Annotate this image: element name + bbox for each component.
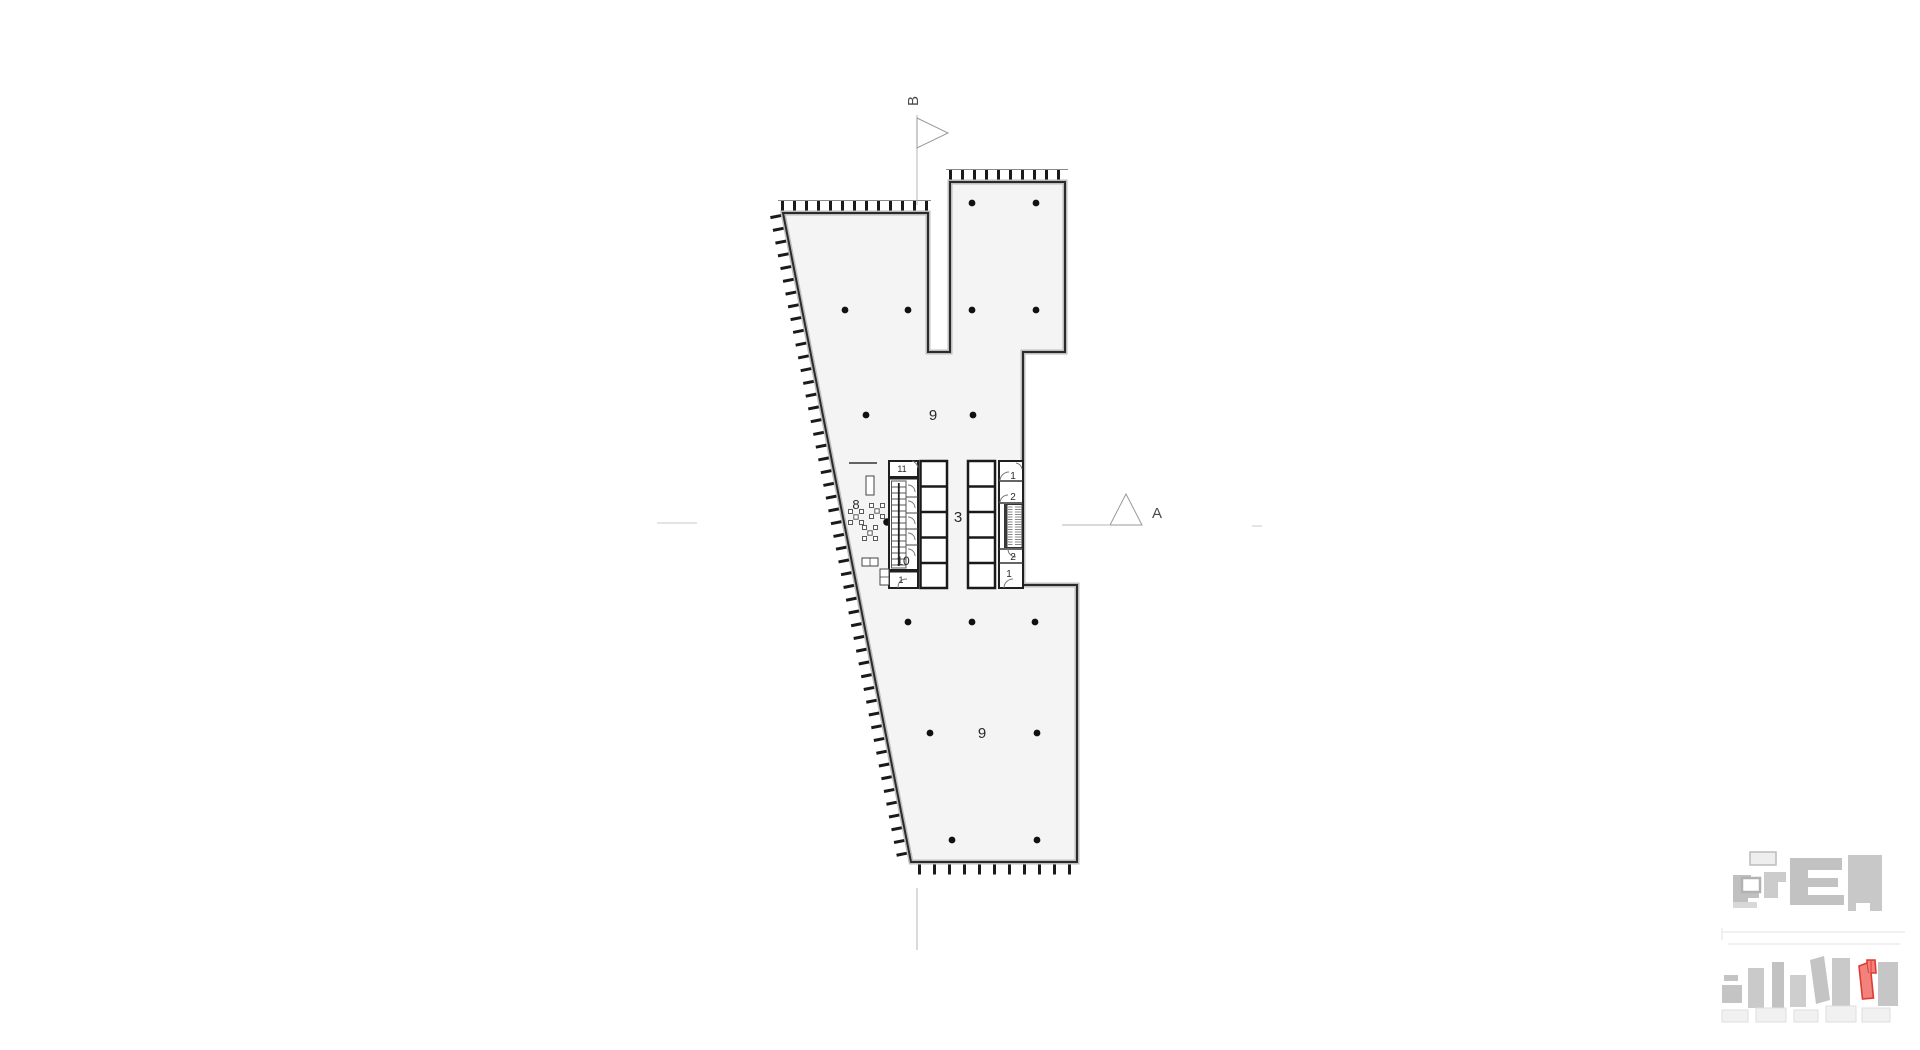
locator-map [1722,852,1905,1022]
section-a-letter: A [1152,505,1162,522]
column-dot [842,307,849,314]
column-dot [1032,619,1039,626]
locator-bottom-row [1722,956,1898,1022]
column-dot [927,730,934,737]
elevator-bank-left [921,461,948,588]
column-dot [1034,730,1041,737]
locator-top-row [1733,852,1882,911]
column-dot [1034,837,1041,844]
table-rect [866,476,874,495]
room-label-8: 8 [852,497,859,512]
elevator-bank-right [968,461,995,588]
column-dot [969,200,976,207]
locator-faint-band [1722,928,1905,944]
section-a-triangle-icon [1110,494,1142,525]
column-dot [1033,307,1040,314]
core-left-wall [889,461,918,588]
wall-bar [889,569,918,573]
room-label-3: 3 [954,509,962,526]
column-dot [969,619,976,626]
sideboard [862,558,878,566]
room-label-2-top: 2 [1010,492,1016,503]
column-dot [905,619,912,626]
column-dot [1033,200,1040,207]
column-dot [970,412,977,419]
floorplan-canvas: 9 9 3 8 10 11 1 1 2 2 1 B A [0,0,1920,1050]
column-dot [863,412,870,419]
room-label-9-upper: 9 [929,407,937,424]
room-label-2-bottom: 2 [1010,552,1016,563]
section-b-letter: B [905,96,922,106]
column-dot [905,307,912,314]
room-label-1-right-bottom: 1 [1006,569,1012,580]
wall-bar [889,476,918,480]
room-label-10: 10 [896,554,910,568]
room-label-1-left-bottom: 1 [898,575,903,585]
room-label-1-right-top: 1 [1010,471,1016,482]
room-label-11: 11 [897,464,906,474]
sink-unit [880,569,889,585]
room-label-9-lower: 9 [978,725,986,742]
column-dot [969,307,976,314]
column-dot [949,837,956,844]
section-b-flag-icon [917,118,948,148]
